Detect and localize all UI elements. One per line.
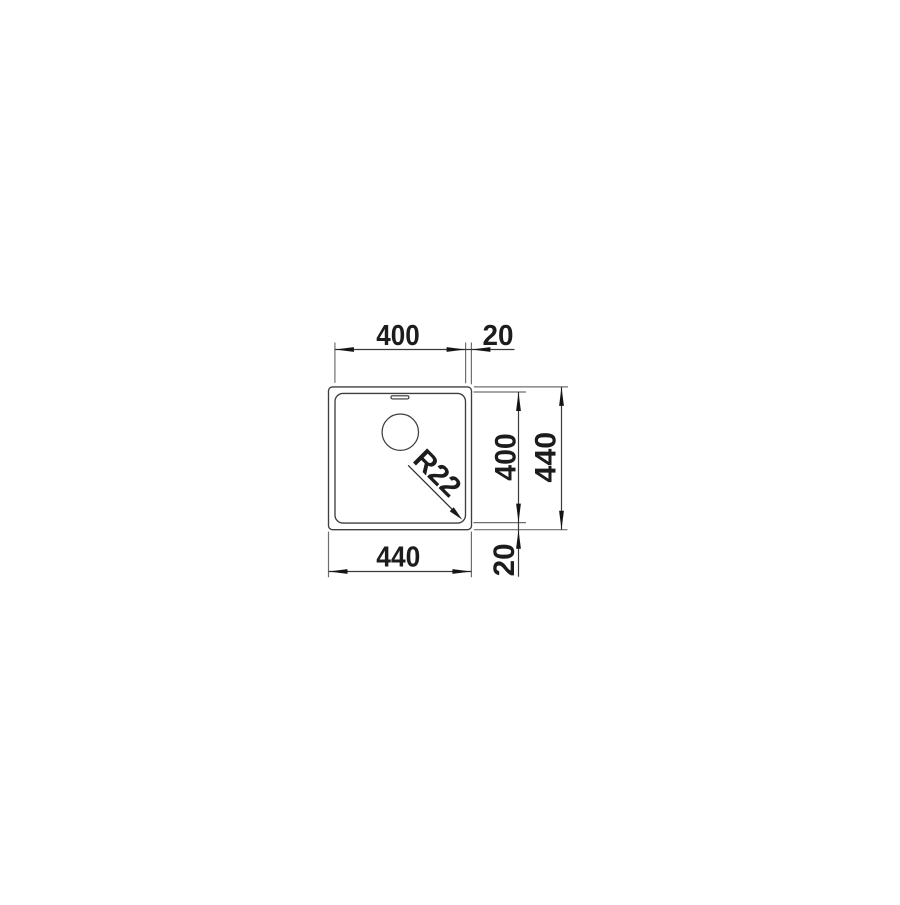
svg-text:400: 400: [489, 433, 522, 481]
svg-text:20: 20: [483, 320, 514, 352]
svg-text:440: 440: [376, 542, 420, 574]
svg-text:20: 20: [488, 543, 521, 576]
svg-text:440: 440: [530, 432, 563, 483]
svg-text:400: 400: [376, 320, 419, 352]
